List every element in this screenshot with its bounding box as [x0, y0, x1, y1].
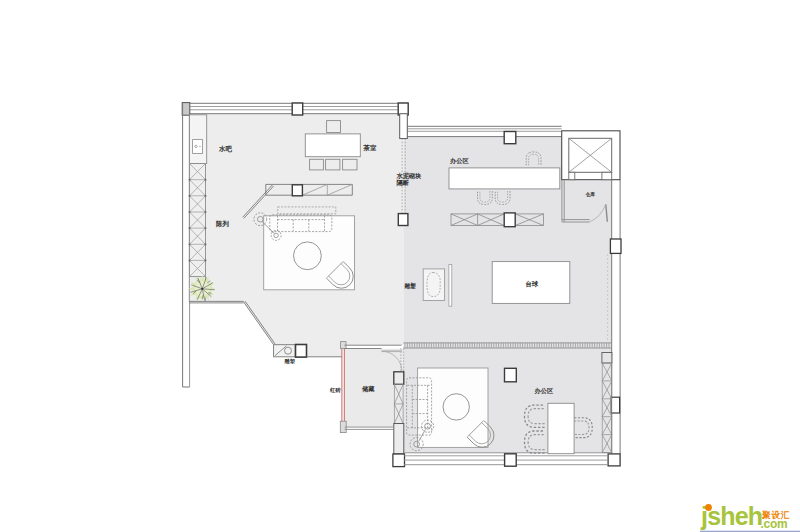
svg-text:隔断: 隔断 — [397, 179, 410, 187]
svg-text:办公区: 办公区 — [534, 387, 554, 395]
svg-text:茶室: 茶室 — [363, 144, 377, 152]
svg-text:陈列: 陈列 — [216, 220, 229, 228]
svg-text:雕塑: 雕塑 — [284, 358, 295, 365]
svg-text:.com: .com — [761, 517, 788, 531]
svg-text:台球: 台球 — [526, 280, 539, 288]
svg-text:仓库: 仓库 — [585, 191, 596, 198]
svg-text:储藏: 储藏 — [361, 385, 375, 393]
svg-text:办公区: 办公区 — [449, 157, 469, 165]
svg-text:雕塑: 雕塑 — [404, 282, 417, 290]
svg-text:红砖: 红砖 — [329, 387, 341, 393]
svg-text:水吧: 水吧 — [218, 145, 232, 153]
